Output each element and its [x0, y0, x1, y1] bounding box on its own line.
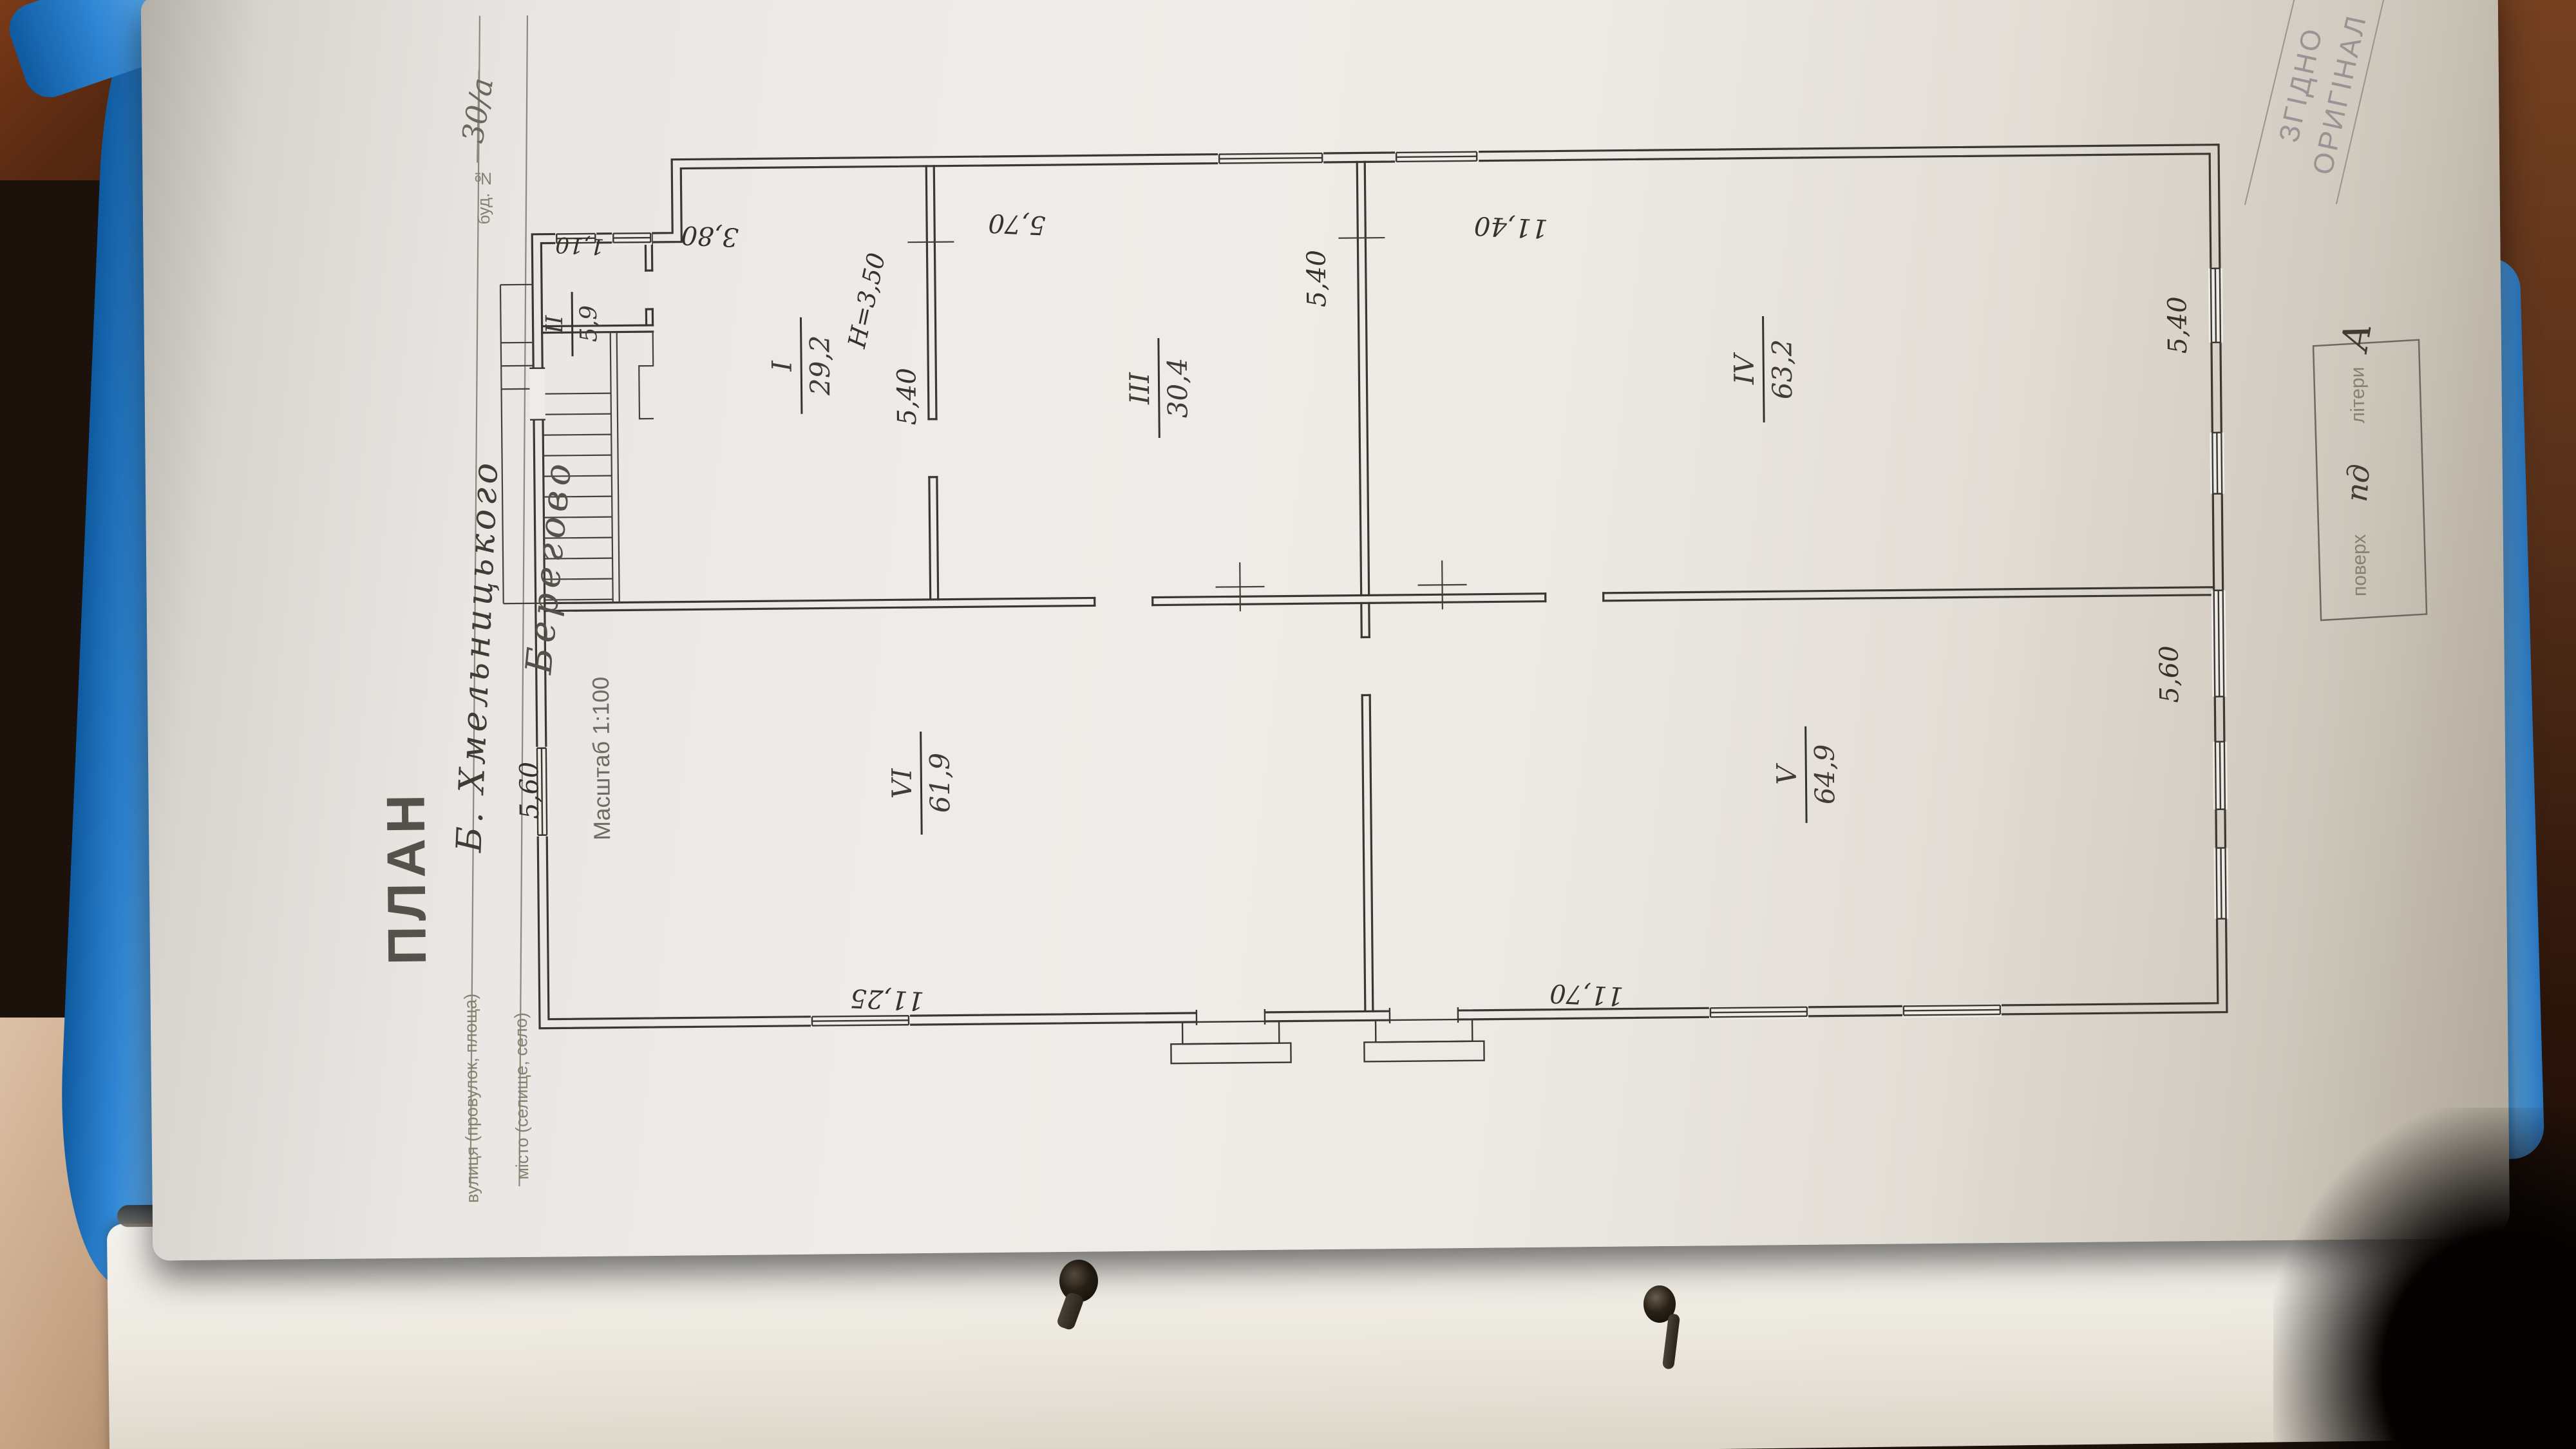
room-label-3: III 30,4	[1126, 337, 1191, 438]
dim-niche: 1,10	[555, 231, 605, 259]
letter-value: А	[2336, 319, 2377, 354]
dim-top-room1: 3,80	[681, 220, 739, 252]
street-field-label: вулиця (провулок, площа)	[462, 994, 482, 1203]
photo-of-floor-plan-document: ПЛАН Масштаб 1:100 вулиця (провулок, пло…	[0, 0, 2576, 1449]
dim-top-room4: 11,40	[1473, 211, 1548, 243]
dim-bottom-right: 11,70	[1549, 978, 1624, 1011]
dim-top-room3: 5,70	[988, 208, 1046, 240]
dim-inner-room3: 5,40	[1304, 250, 1331, 307]
dim-right-lower: 5,60	[2156, 645, 2183, 703]
room-label-1: I 29,2	[768, 317, 834, 414]
room-label-5: V 64,9	[1773, 726, 1839, 823]
scale-label: Масштаб 1:100	[589, 677, 614, 840]
room-label-6: VI 61,9	[888, 732, 954, 835]
corner-shadow	[2273, 1108, 2576, 1449]
building-number-label: буд. №	[475, 169, 492, 224]
room-label-4: IV 63,2	[1730, 316, 1797, 422]
dim-bottom-left: 11,25	[849, 983, 924, 1016]
floor-label: поверх	[2350, 534, 2370, 596]
city-field-label: місто (селище, село)	[513, 1012, 531, 1180]
dim-right-upper: 5,40	[2164, 296, 2191, 354]
floor-value: пд	[2342, 463, 2374, 503]
dim-left-lower: 5,60	[516, 762, 543, 819]
dim-inner-room1: 5,40	[894, 368, 920, 425]
document-sheet: ПЛАН Масштаб 1:100 вулиця (провулок, пло…	[141, 0, 2510, 1261]
page-title: ПЛАН	[378, 789, 434, 965]
document-content: ПЛАН Масштаб 1:100 вулиця (провулок, пло…	[141, 0, 2510, 1261]
room-label-2: II 5,9	[544, 292, 601, 357]
letter-label: літери	[2348, 366, 2368, 423]
